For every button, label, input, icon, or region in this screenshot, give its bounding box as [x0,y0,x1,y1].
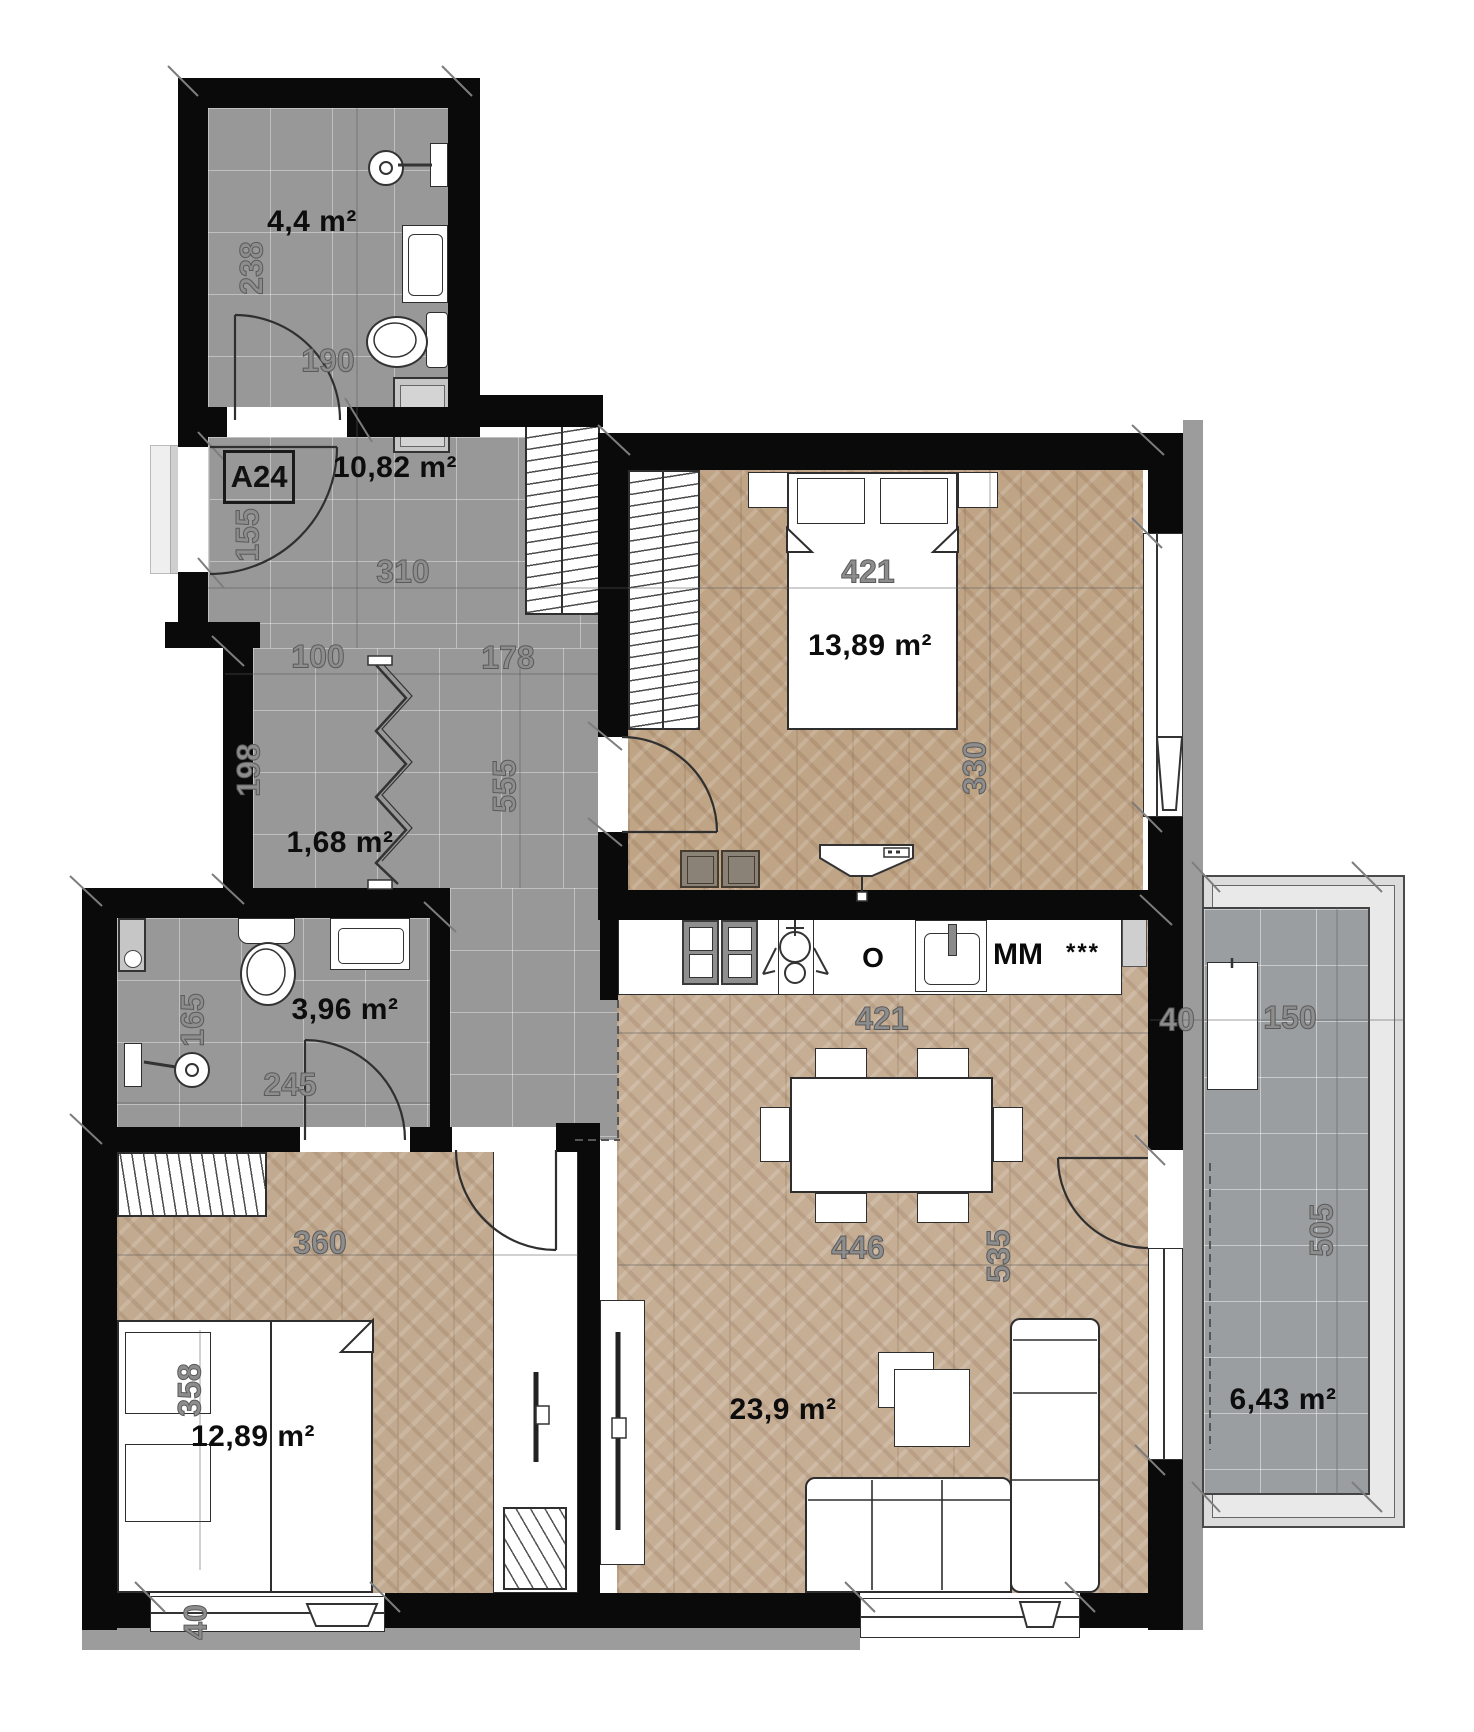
chair-icon [993,1107,1023,1162]
dim-198: 198 [231,743,268,796]
bedroom-right-wardrobe-rail [662,470,664,730]
wall [1080,1593,1148,1628]
dim-421-bed: 421 [841,554,894,591]
balcony-door-opening [1148,1150,1183,1248]
window-mullion [1163,1248,1165,1460]
room-area-bathroom-top: 4,4 m² [267,205,357,239]
pillow-icon [125,1444,211,1522]
window-balcony-fixed [1148,1248,1183,1460]
dresser-inner [687,856,714,884]
chair-icon [917,1193,969,1223]
dim-360: 360 [293,1225,346,1262]
wall [560,1593,860,1628]
shower-head-center [185,1063,199,1077]
dim-421-kitchen: 421 [855,1001,908,1038]
wall [165,622,260,648]
floor-plan: O MM *** [0,0,1474,1732]
door-opening [598,737,628,832]
freezer-label: *** [1066,939,1100,967]
entrance-opening [178,447,208,572]
wall [410,1127,452,1152]
wall [178,407,227,437]
wall [82,888,450,918]
entrance-mat [150,445,172,574]
unit-label-box: A24 [223,450,295,504]
chair-icon [917,1048,969,1078]
nightstand-icon [748,472,788,508]
wall [598,433,1183,470]
balcony-unit [1207,962,1258,1090]
toilet-bowl-icon [240,942,296,1006]
room-area-corridor: 1,68 m² [287,826,394,860]
wall [178,572,208,624]
dim-535: 535 [981,1229,1018,1282]
toilet-tank-icon [426,312,448,368]
dim-190: 190 [301,343,354,380]
toilet-bowl-icon [366,316,428,368]
dim-238: 238 [234,241,271,294]
dim-358: 358 [172,1363,209,1416]
dim-165: 165 [175,993,212,1046]
counter-end-panel [1122,918,1147,967]
wall [598,832,628,892]
wall [430,918,450,1128]
window-living [860,1598,1080,1638]
wall [448,78,480,437]
wall [1148,817,1183,1150]
room-area-bedroom-left: 12,89 m² [191,1420,315,1454]
wall [598,433,628,737]
wall [598,890,1150,920]
bathroom-small-sink-basin [338,928,404,964]
shower-head-center [379,161,393,175]
wall [1148,470,1183,533]
room-area-living: 23,9 m² [730,1393,837,1427]
oven-label: O [862,942,884,974]
dim-446: 446 [831,1230,884,1267]
room-area-balcony: 6,43 m² [1230,1383,1337,1417]
window-bedroom-right [1143,533,1183,817]
door-opening [452,1127,556,1152]
bed-headboard-line [270,1320,272,1593]
nightstand-icon [958,472,998,508]
dresser-inner [728,856,755,884]
dim-40-bedroom: 40 [178,1604,215,1640]
dim-40-balcony: 40 [1159,1002,1195,1039]
kitchen-faucet-icon [948,924,957,956]
dim-100: 100 [291,639,344,676]
fridge-pane [689,927,713,951]
microwave-label: MM [993,938,1043,972]
toilet-tank-icon [238,918,295,944]
dim-178: 178 [481,640,534,677]
wall [578,1152,600,1593]
room-area-bedroom-right: 13,89 m² [808,629,932,663]
dining-table-icon [790,1077,993,1193]
unit-label: A24 [231,459,288,495]
wall [600,918,618,1000]
wall [178,437,208,447]
pillow-icon [797,478,865,524]
dim-330: 330 [957,741,994,794]
wall [347,407,480,437]
wall [82,1593,150,1628]
dim-310: 310 [376,554,429,591]
shower-mixer-icon [124,1043,142,1087]
bedroom-left-cabinet [503,1507,567,1590]
dim-150: 150 [1263,1000,1316,1037]
wall [82,1127,300,1152]
wall [178,108,208,437]
entry-wardrobe-rail [561,425,563,615]
window-mullion [860,1616,1080,1618]
stove-icon [778,918,814,995]
door-opening [300,1127,410,1152]
hall-strip-floor [450,888,620,1140]
door-opening [227,407,347,437]
tv-stand-icon [600,1300,645,1565]
corner-shower-drain [124,950,142,968]
chair-icon [760,1107,790,1162]
chair-icon [815,1193,867,1223]
wall [385,1593,560,1628]
sofa-chaise-icon [1010,1318,1100,1593]
wall [480,395,603,427]
wall [178,78,480,108]
dim-505: 505 [1304,1203,1341,1256]
fridge-pane [689,954,713,978]
room-area-bathroom-small: 3,96 m² [292,993,399,1027]
dim-155: 155 [230,508,267,561]
dim-555: 555 [487,759,524,812]
wall [1148,1460,1183,1630]
cabinet-pane [728,954,752,978]
dim-245: 245 [263,1067,316,1104]
chair-icon [815,1048,867,1078]
coffee-table-icon [894,1369,970,1447]
room-area-entry: 10,82 m² [333,451,457,485]
shower-mixer-icon [430,143,448,187]
bedroom-right-wardrobe-icon [628,470,700,730]
wall [82,888,117,1630]
bathroom-sink-basin [408,234,443,296]
sofa-icon [805,1477,1012,1593]
wall [556,1123,600,1152]
pillow-icon [880,478,948,524]
cabinet-pane [728,927,752,951]
window-mullion [1156,533,1158,817]
bedroom-left-wardrobe-icon [117,1152,267,1217]
